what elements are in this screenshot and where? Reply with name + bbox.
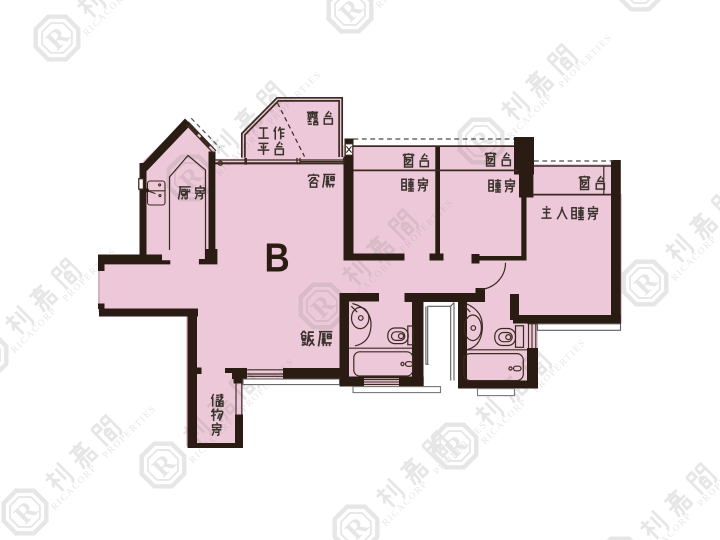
svg-text:B: B [265, 236, 290, 281]
